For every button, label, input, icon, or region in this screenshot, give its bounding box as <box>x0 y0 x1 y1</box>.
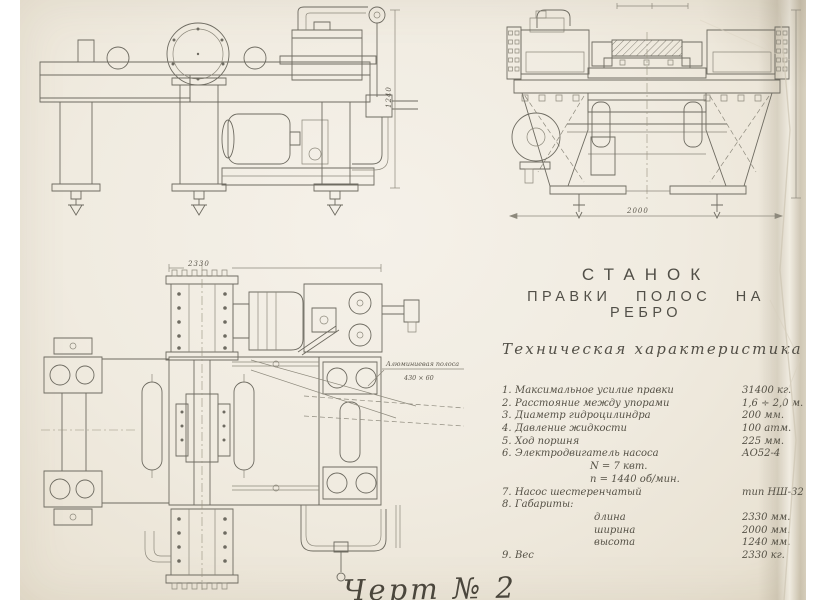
scanned-drawing-sheet: 1240 <box>0 0 816 600</box>
paper-crease-lines <box>0 0 816 600</box>
